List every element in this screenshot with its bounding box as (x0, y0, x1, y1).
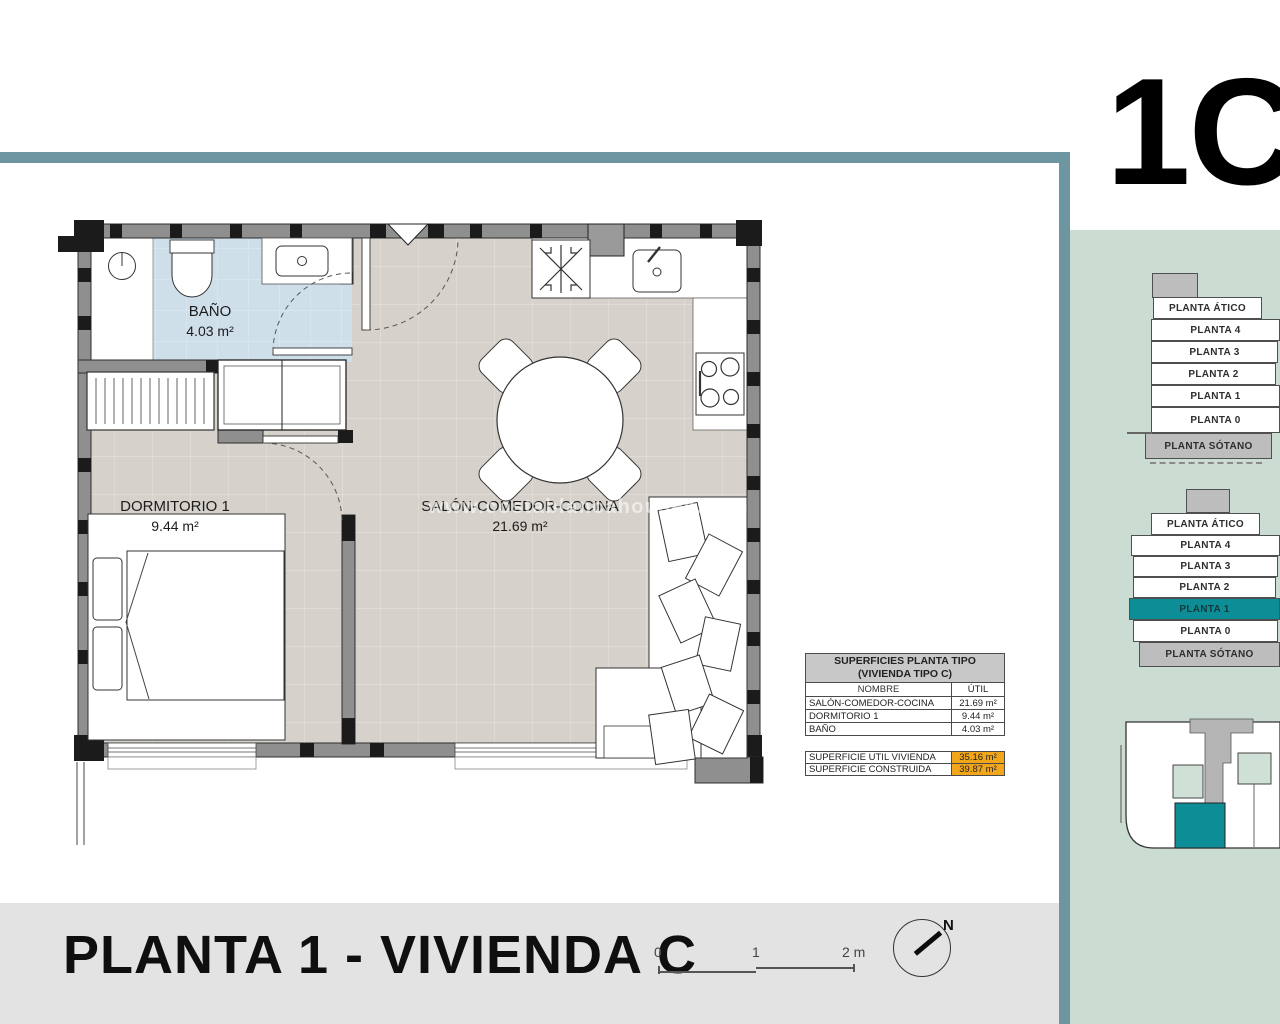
row-value: 9.44 m² (952, 710, 1004, 722)
doors (263, 238, 458, 522)
wall-pillar (588, 224, 624, 256)
hob (696, 353, 744, 415)
floor-row-sotano[interactable]: PLANTA SÓTANO (1139, 642, 1280, 667)
total-value-highlight: 39.87 m² (952, 764, 1004, 775)
scale-label-1: 1 (752, 944, 760, 960)
toilet-bowl (172, 253, 212, 297)
storage (87, 360, 346, 430)
wardrobe (87, 372, 214, 430)
surfaces-table-title-line1: SUPERFICIES PLANTA TIPO (834, 655, 976, 668)
row-name: SALÓN-COMEDOR-COCINA (806, 697, 952, 709)
page-title: PLANTA 1 - VIVIENDA C (63, 924, 697, 986)
row-name: DORMITORIO 1 (806, 710, 952, 722)
building-roof-box (1186, 489, 1230, 513)
row-value: 21.69 m² (952, 697, 1004, 709)
floor-row-1[interactable]: PLANTA 1 (1151, 385, 1280, 407)
scale-bar: 0 1 2 m (650, 944, 895, 984)
entry-door-notch (388, 224, 428, 245)
total-row-util: SUPERFICIE UTIL VIVIENDA 35.16 m² (805, 751, 1005, 764)
floor-row-sotano[interactable]: PLANTA SÓTANO (1145, 433, 1272, 459)
total-value-highlight: 35.16 m² (952, 752, 1004, 763)
toilet-tank (170, 240, 214, 253)
north-compass-icon: N (893, 919, 951, 977)
scale-label-0: 0 (654, 944, 662, 960)
floor-row-atico[interactable]: PLANTA ÁTICO (1151, 513, 1260, 535)
total-name: SUPERFICIE CONSTRUIDA (806, 764, 952, 775)
windows (77, 743, 687, 845)
room-label-bano: BAÑO 4.03 m² (150, 301, 270, 342)
surfaces-table-header-row: NOMBRE ÚTIL (805, 683, 1005, 697)
sofa (596, 497, 747, 765)
surfaces-table-title: SUPERFICIES PLANTA TIPO (VIVIENDA TIPO C… (805, 653, 1005, 683)
floor-row-1-selected[interactable]: PLANTA 1 (1129, 598, 1280, 620)
ground-line (1127, 432, 1152, 434)
unit-code: 1C (1106, 56, 1280, 208)
room-area: 9.44 m² (90, 517, 260, 537)
table-row: BAÑO 4.03 m² (805, 723, 1005, 736)
surfaces-table-title-line2: (VIVIENDA TIPO C) (858, 668, 952, 681)
floor-row-0[interactable]: PLANTA 0 (1133, 620, 1278, 642)
extractor-fan-icon (532, 240, 590, 298)
north-label: N (943, 917, 954, 934)
col-header-util: ÚTIL (952, 683, 1004, 696)
table-row: SALÓN-COMEDOR-COCINA 21.69 m² (805, 697, 1005, 710)
top-accent-bar (0, 152, 1070, 163)
table-row: DORMITORIO 1 9.44 m² (805, 710, 1005, 723)
vanity-sink (276, 246, 328, 276)
bathroom-fixtures (109, 238, 353, 297)
building-roof-box (1152, 273, 1198, 298)
room-label-dormitorio: DORMITORIO 1 9.44 m² (90, 496, 260, 537)
room-area: 4.03 m² (150, 322, 270, 342)
bed (88, 514, 285, 740)
floor-row-3[interactable]: PLANTA 3 (1151, 341, 1278, 363)
kitchen-counter (532, 238, 747, 430)
total-name: SUPERFICIE UTIL VIVIENDA (806, 752, 952, 763)
kitchen-sink (633, 250, 681, 292)
total-row-construida: SUPERFICIE CONSTRUIDA 39.87 m² (805, 763, 1005, 776)
vanity-counter (262, 238, 352, 284)
watermark: www.costablancahouses.com (428, 496, 780, 519)
col-header-nombre: NOMBRE (806, 683, 952, 696)
floor-row-2[interactable]: PLANTA 2 (1151, 363, 1276, 385)
floor-row-4[interactable]: PLANTA 4 (1151, 319, 1280, 341)
floor-row-0[interactable]: PLANTA 0 (1151, 407, 1280, 433)
kitchen-appliances (532, 240, 744, 415)
surfaces-table: SUPERFICIES PLANTA TIPO (VIVIENDA TIPO C… (805, 653, 1005, 776)
row-name: BAÑO (806, 723, 952, 735)
floor-row-3[interactable]: PLANTA 3 (1133, 556, 1278, 577)
floor-row-2[interactable]: PLANTA 2 (1133, 577, 1276, 598)
room-name: BAÑO (150, 301, 270, 322)
row-value: 4.03 m² (952, 723, 1004, 735)
floor-row-atico[interactable]: PLANTA ÁTICO (1153, 297, 1262, 319)
hall-closet (218, 360, 346, 430)
dining-table (475, 335, 645, 505)
right-accent-bar (1059, 152, 1070, 1024)
floor-row-4[interactable]: PLANTA 4 (1131, 535, 1280, 556)
room-name: DORMITORIO 1 (90, 496, 260, 517)
ground-dashes (1150, 462, 1262, 464)
shower-drain-icon (109, 253, 136, 280)
scale-label-2m: 2 m (842, 944, 865, 960)
floor-plan-page: { "page": { "unit_code": "1C", "title": … (0, 0, 1280, 1024)
room-area: 21.69 m² (420, 517, 620, 537)
